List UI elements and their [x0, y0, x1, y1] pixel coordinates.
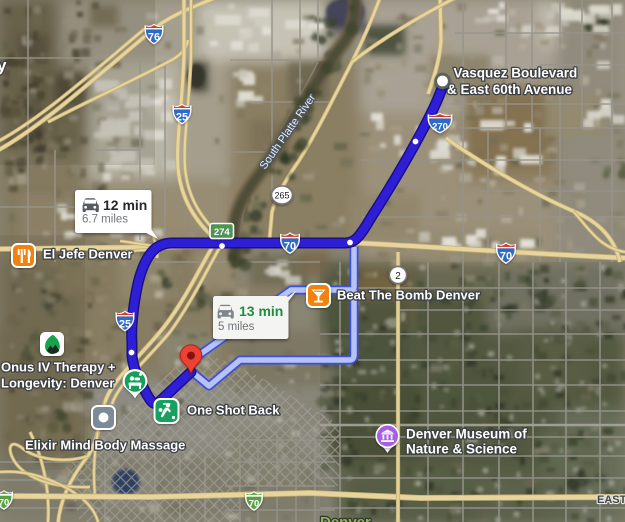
- svg-text:270: 270: [432, 121, 448, 132]
- svg-text:2: 2: [395, 271, 401, 282]
- svg-text:25: 25: [176, 111, 188, 123]
- svg-text:& East 60th Avenue: & East 60th Avenue: [447, 82, 573, 97]
- svg-text:265: 265: [274, 190, 289, 200]
- svg-text:Nature & Science: Nature & Science: [406, 442, 518, 457]
- svg-text:El Jefe Denver: El Jefe Denver: [43, 247, 133, 262]
- svg-text:Vasquez Boulevard: Vasquez Boulevard: [454, 66, 578, 81]
- svg-text:Denver: Denver: [320, 514, 371, 522]
- svg-text:76: 76: [148, 31, 160, 43]
- svg-text:5 miles: 5 miles: [218, 321, 255, 333]
- svg-text:One Shot Back: One Shot Back: [187, 403, 280, 418]
- svg-text:70: 70: [284, 241, 296, 253]
- svg-text:y: y: [0, 56, 7, 75]
- svg-text:70: 70: [0, 498, 9, 509]
- svg-text:Beat The Bomb Denver: Beat The Bomb Denver: [337, 288, 480, 303]
- svg-text:Longevity: Denver: Longevity: Denver: [1, 376, 114, 391]
- svg-text:6.7 miles: 6.7 miles: [82, 214, 128, 226]
- svg-text:Onus IV Therapy +: Onus IV Therapy +: [1, 360, 116, 375]
- svg-text:70: 70: [500, 251, 512, 263]
- svg-text:12 min: 12 min: [103, 197, 147, 213]
- svg-text:13 min: 13 min: [239, 303, 283, 319]
- svg-text:25: 25: [119, 318, 131, 330]
- svg-text:Elixir Mind Body Massage: Elixir Mind Body Massage: [25, 438, 185, 453]
- svg-text:70: 70: [249, 499, 260, 510]
- svg-text:274: 274: [214, 227, 231, 238]
- svg-text:EAST-: EAST-: [597, 494, 625, 506]
- svg-text:Denver Museum of: Denver Museum of: [406, 427, 527, 442]
